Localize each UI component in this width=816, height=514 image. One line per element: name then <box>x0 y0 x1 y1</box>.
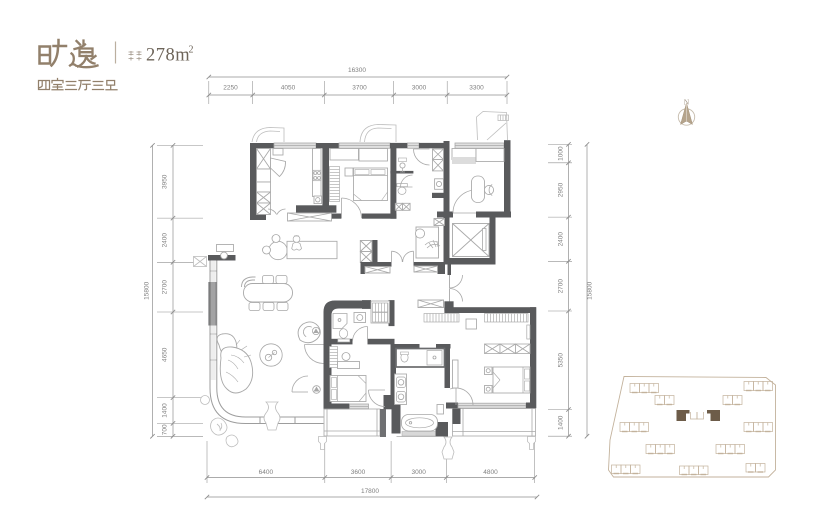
svg-text:3600: 3600 <box>351 469 366 476</box>
svg-text:17800: 17800 <box>361 488 379 495</box>
svg-text:6400: 6400 <box>259 469 274 476</box>
svg-text:N: N <box>684 98 690 107</box>
svg-text:15800: 15800 <box>144 281 151 299</box>
svg-text:700: 700 <box>162 424 169 435</box>
svg-text:2250: 2250 <box>223 85 238 92</box>
svg-text:3000: 3000 <box>412 85 427 92</box>
svg-text:278m: 278m <box>146 46 190 66</box>
svg-text:3000: 3000 <box>411 469 426 476</box>
svg-text:4050: 4050 <box>281 85 296 92</box>
svg-text:16300: 16300 <box>348 67 366 74</box>
svg-text:3950: 3950 <box>162 174 169 189</box>
svg-text:3700: 3700 <box>352 85 367 92</box>
svg-text:3300: 3300 <box>469 85 484 92</box>
svg-text:2700: 2700 <box>162 280 169 295</box>
svg-text:4650: 4650 <box>162 347 169 362</box>
svg-text:2400: 2400 <box>162 233 169 248</box>
svg-text:15800: 15800 <box>587 281 594 299</box>
svg-text:5350: 5350 <box>558 353 565 368</box>
svg-text:2400: 2400 <box>558 232 565 247</box>
svg-text:1000: 1000 <box>558 146 565 161</box>
svg-text:1400: 1400 <box>558 415 565 430</box>
svg-text:2: 2 <box>189 45 194 56</box>
svg-text:4800: 4800 <box>483 469 498 476</box>
svg-text:1400: 1400 <box>162 403 169 418</box>
svg-text:2950: 2950 <box>558 182 565 197</box>
svg-text:2700: 2700 <box>558 279 565 294</box>
